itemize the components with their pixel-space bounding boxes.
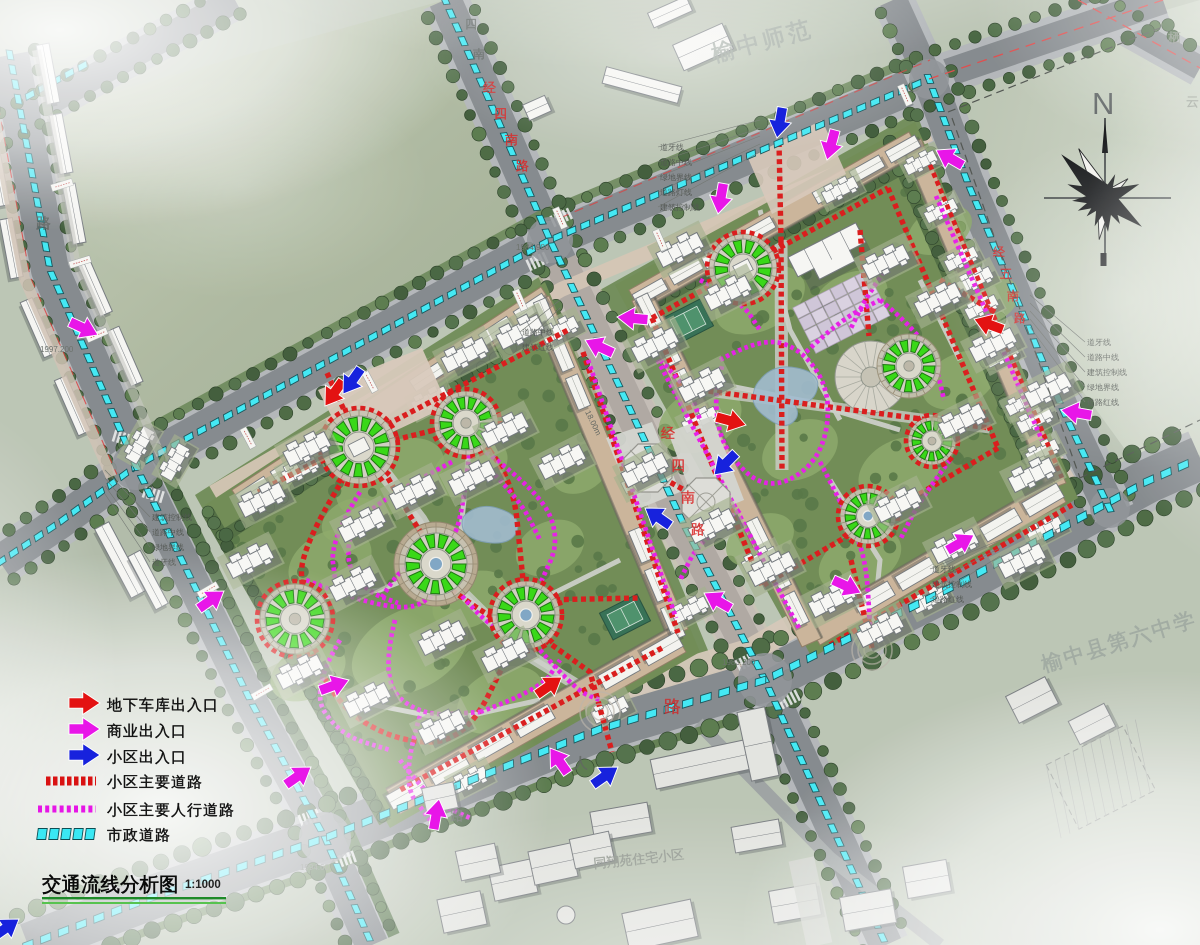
svg-text:1:1000: 1:1000 [185,879,221,891]
